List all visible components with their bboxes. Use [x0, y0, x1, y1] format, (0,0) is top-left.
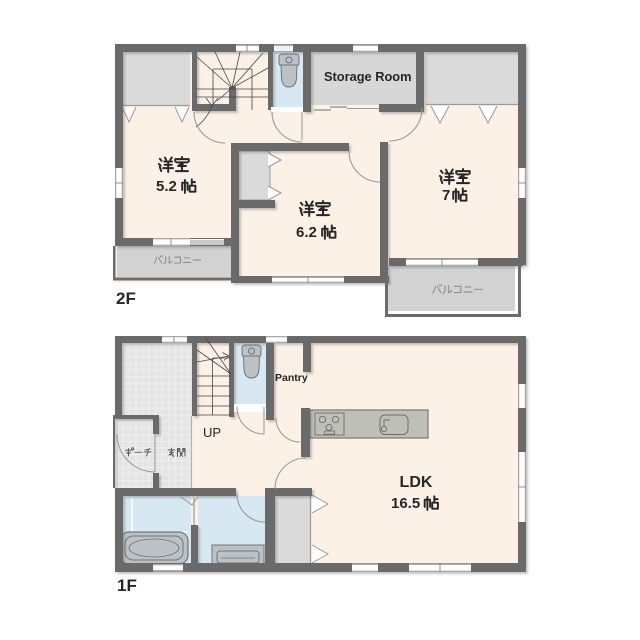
svg-text:7: 7 — [442, 187, 450, 204]
svg-text:6.2: 6.2 — [296, 224, 317, 241]
svg-text:1F: 1F — [117, 576, 137, 595]
svg-text:2F: 2F — [116, 289, 136, 308]
svg-text:5.2: 5.2 — [156, 178, 177, 195]
svg-text:Pantry: Pantry — [275, 372, 308, 384]
svg-text:LDK: LDK — [400, 474, 433, 491]
svg-text:Storage Room: Storage Room — [324, 69, 411, 84]
svg-text:UP: UP — [203, 425, 221, 440]
svg-text:16.5: 16.5 — [391, 495, 420, 512]
